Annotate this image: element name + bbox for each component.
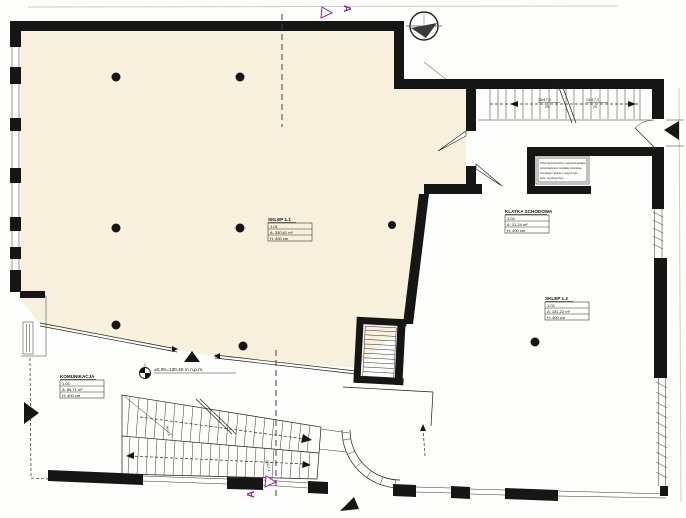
room-label-klatka-schodowa: KLATKA SCHODOWA 1.04 A: 31,24 m² H: 400 … — [505, 209, 553, 233]
stair-run-label-2: 13x17,3 — [586, 98, 599, 102]
curved-entrance-wall — [342, 430, 400, 488]
stair-riser-count-1: 29 — [545, 105, 549, 109]
section-letter-top: A — [341, 5, 352, 12]
note-line-1: Drzwi dymoszczelne i samozamykające — [540, 161, 586, 165]
small-stair-block — [353, 317, 406, 386]
section-letter-bottom: A — [246, 491, 257, 498]
room-area: A: 31,24 m² — [507, 222, 528, 227]
room-height: H: 400 cm — [62, 393, 81, 398]
note-line-2: przed wejściem na klatkę schodową — [540, 166, 582, 170]
room-name: SKLEP 1.2 — [545, 296, 568, 301]
stair-riser-count-2: 29 — [593, 105, 597, 109]
room-height: H: 400 cm — [507, 228, 526, 233]
room-label-komunikacja: KOMUNIKACJA 1.03 A: 66,71 m² H: 400 cm — [60, 374, 104, 398]
room-number: 1.02 — [547, 303, 556, 308]
room-number: 1.01 — [270, 224, 279, 229]
level-marker: ±0,00=130,40 m n.p.m. — [140, 363, 237, 379]
fire-note-box: Drzwi dymoszczelne i samozamykające prze… — [536, 156, 589, 184]
room-height: H: 400 cm — [270, 236, 289, 241]
room-area: A: 66,71 m² — [62, 387, 83, 392]
room-height: H: 400 cm — [547, 315, 566, 320]
note-line-3: zamykane zgodnie z wytycznymi — [540, 171, 578, 175]
room-label-sklep-1-2: SKLEP 1.2 1.02 A: 181,22 m² H: 400 cm — [545, 296, 589, 320]
stair-lower-label-1: 9x17,4 — [165, 425, 171, 436]
entrance-arrows — [24, 402, 359, 511]
floor-plan-drawing: 13x17,3 29 13x17,3 29 Drzwi dymoszczelne… — [0, 0, 686, 518]
room-name: KLATKA SCHODOWA — [505, 209, 553, 214]
room-number: 1.03 — [62, 381, 71, 386]
north-indicator-icon — [406, 11, 442, 41]
floor-plan-page: 13x17,3 29 13x17,3 29 Drzwi dymoszczelne… — [0, 0, 686, 518]
room-area: A: 181,22 m² — [547, 309, 571, 314]
room-area: A: 330,61 m² — [270, 230, 294, 235]
main-stairwell: 13x17,3 29 13x17,3 29 — [478, 85, 652, 123]
room-name: SKLEP 1.1 — [268, 217, 291, 222]
sklep-1-2-entry-boundary — [343, 387, 433, 456]
lower-staircase: 9x17,4 19x17,4 — [122, 395, 349, 479]
stair-lower-label-2: 19x17,4 — [265, 459, 271, 471]
stair-run-label-1: 13x17,3 — [538, 98, 551, 102]
room-number: 1.04 — [507, 216, 516, 221]
note-line-4: ppoż. wg ekspertyzy — [540, 176, 564, 180]
elevation-label: ±0,00=130,40 m n.p.m. — [154, 367, 203, 373]
room-name: KOMUNIKACJA — [60, 374, 95, 379]
